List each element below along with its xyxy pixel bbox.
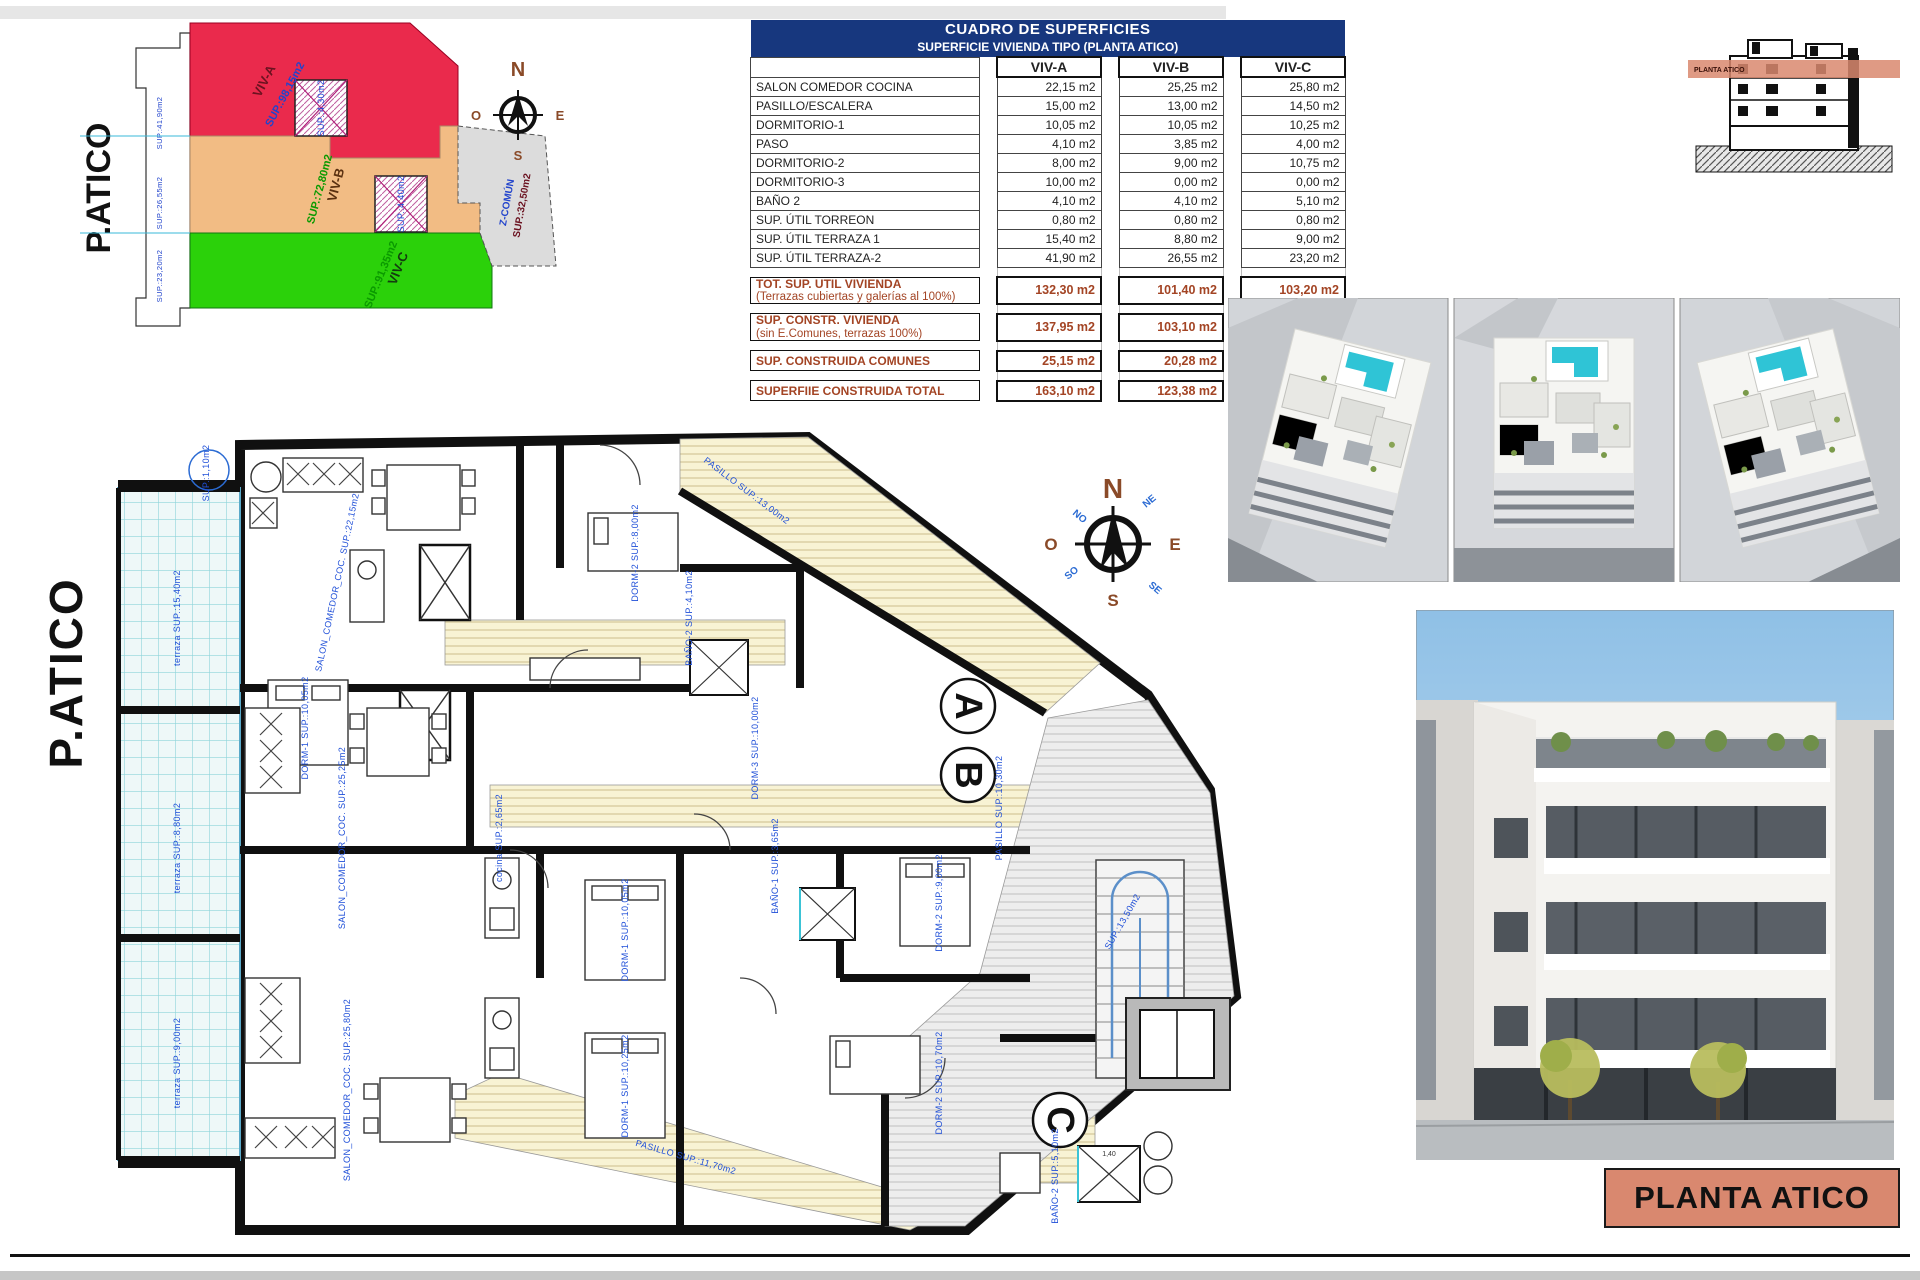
edge-label-2: SUP.:26,55m2	[155, 177, 164, 230]
side-windows	[1494, 818, 1528, 1046]
table-row: SUP. ÚTIL TORREON0,80 m20,80 m20,80 m2	[751, 211, 1346, 230]
core-box-1	[420, 545, 470, 620]
site-plan-diagram: P.ATICO SUP.:4,30m2 SUP.:4,40m2 VIV-A SU…	[40, 8, 600, 353]
elevator	[1126, 998, 1230, 1090]
svg-text:BAÑO-2 SUP.:5,10m2: BAÑO-2 SUP.:5,10m2	[1050, 1128, 1060, 1224]
svg-text:N: N	[511, 59, 525, 81]
table-row: DORMITORIO-28,00 m29,00 m210,75 m2	[751, 154, 1346, 173]
svg-text:PASILLO SUP.:10,30m2: PASILLO SUP.:10,30m2	[994, 756, 1004, 861]
svg-text:S: S	[514, 148, 523, 163]
aerial-render-3	[1680, 298, 1900, 582]
svg-text:DORM-2 SUP.:10,70m2: DORM-2 SUP.:10,70m2	[934, 1032, 944, 1135]
svg-text:DORM-2 SUP.:9,00m2: DORM-2 SUP.:9,00m2	[934, 854, 944, 952]
table-row: PASO4,10 m23,85 m24,00 m2	[751, 135, 1346, 154]
svg-text:terraza SUP.:8,80m2: terraza SUP.:8,80m2	[172, 803, 182, 893]
svg-text:E: E	[556, 108, 565, 123]
facade-render	[1416, 610, 1894, 1160]
marker-a: A	[947, 692, 989, 719]
marker-c: C	[1039, 1106, 1081, 1133]
svg-text:terraza SUP.:9,00m2: terraza SUP.:9,00m2	[172, 1018, 182, 1108]
table-row: DORMITORIO-310,00 m20,00 m20,00 m2	[751, 173, 1346, 192]
marker-b: B	[947, 761, 989, 788]
aerial-render-1	[1228, 298, 1448, 582]
balcony-bands	[1544, 806, 1830, 1068]
table-title: CUADRO DE SUPERFICIES	[751, 20, 1346, 38]
col-viv-a: VIV-A	[997, 57, 1101, 77]
table-row: DORMITORIO-110,05 m210,05 m210,25 m2	[751, 116, 1346, 135]
svg-text:cocina SUP.:2,65m2: cocina SUP.:2,65m2	[494, 794, 504, 882]
svg-text:SALON_COMEDOR_COC. SUP.:25,25m: SALON_COMEDOR_COC. SUP.:25,25m2	[337, 747, 347, 929]
shower-2	[800, 888, 855, 940]
svg-text:O: O	[471, 108, 481, 123]
table-row: PASILLO/ESCALERA15,00 m213,00 m214,50 m2	[751, 97, 1346, 116]
aerial-renders	[1228, 298, 1900, 582]
svg-text:DORM-1 SUP.:10,05m2: DORM-1 SUP.:10,05m2	[620, 879, 630, 982]
table-row: SUP. ÚTIL TERRAZA-241,90 m226,55 m223,20…	[751, 249, 1346, 268]
section-band-label: PLANTA ATICO	[1694, 67, 1745, 74]
table-header-row: VIV-A VIV-B VIV-C	[751, 57, 1346, 77]
zone-viv-c	[190, 233, 492, 308]
svg-text:DORM-1 SUP.:10,05m2: DORM-1 SUP.:10,05m2	[300, 677, 310, 780]
svg-text:SUP.:4,40m2: SUP.:4,40m2	[396, 176, 406, 233]
site-core-2: SUP.:4,40m2	[375, 176, 427, 233]
floor-plan: P.ATICO	[40, 418, 1245, 1248]
site-plan-title: P.ATICO	[80, 123, 118, 254]
plan-title: P.ATICO	[40, 577, 92, 768]
shower-1	[690, 640, 748, 695]
table-row: SUP. ÚTIL TERRAZA 115,40 m28,80 m29,00 m…	[751, 230, 1346, 249]
svg-text:DORM-2 SUP.:8,00m2: DORM-2 SUP.:8,00m2	[630, 504, 640, 602]
shower-dim-label: 1,40	[1102, 1151, 1116, 1158]
svg-text:terraza SUP.:15,40m2: terraza SUP.:15,40m2	[172, 570, 182, 666]
table-row: BAÑO 24,10 m24,10 m25,10 m2	[751, 192, 1346, 211]
building-section-diagram: PLANTA ATICO	[1688, 26, 1900, 178]
sheet-bottom-edge	[0, 1271, 1920, 1280]
svg-text:DORM-1 SUP.:10,25m2: DORM-1 SUP.:10,25m2	[620, 1035, 630, 1138]
sheet-bottom-rule	[10, 1254, 1910, 1257]
svg-text:BAÑO-1 SUP.:3,65m2: BAÑO-1 SUP.:3,65m2	[770, 818, 780, 914]
edge-label-3: SUP.:23,20m2	[155, 250, 164, 303]
svg-text:SUP.:1,10m2: SUP.:1,10m2	[201, 445, 211, 502]
svg-text:DORM-3 SUP.:10,00m2: DORM-3 SUP.:10,00m2	[750, 697, 760, 800]
main-building	[1474, 702, 1836, 1126]
svg-text:SUP.:4,30m2: SUP.:4,30m2	[316, 80, 326, 137]
edge-label-1: SUP.:41,90m2	[155, 97, 164, 150]
title-block: PLANTA ATICO	[1604, 1168, 1900, 1228]
drawing-sheet: P.ATICO SUP.:4,30m2 SUP.:4,40m2 VIV-A SU…	[0, 0, 1920, 1280]
col-viv-b: VIV-B	[1119, 57, 1223, 77]
sheet-title: PLANTA ATICO	[1634, 1180, 1870, 1216]
shower-3: 1,40	[1078, 1146, 1140, 1202]
aerial-render-2	[1454, 298, 1674, 582]
table-row: SALON COMEDOR COCINA22,15 m225,25 m225,8…	[751, 77, 1346, 97]
col-viv-c: VIV-C	[1241, 57, 1345, 77]
svg-text:SALON_COMEDOR_COC. SUP.:25,80m: SALON_COMEDOR_COC. SUP.:25,80m2	[342, 999, 352, 1181]
table-subtitle: SUPERFICIE VIVIENDA TIPO (PLANTA ATICO)	[751, 38, 1346, 57]
svg-text:BAÑO-2 SUP.:4,10m2: BAÑO-2 SUP.:4,10m2	[684, 570, 694, 666]
site-core-1: SUP.:4,30m2	[295, 80, 347, 137]
